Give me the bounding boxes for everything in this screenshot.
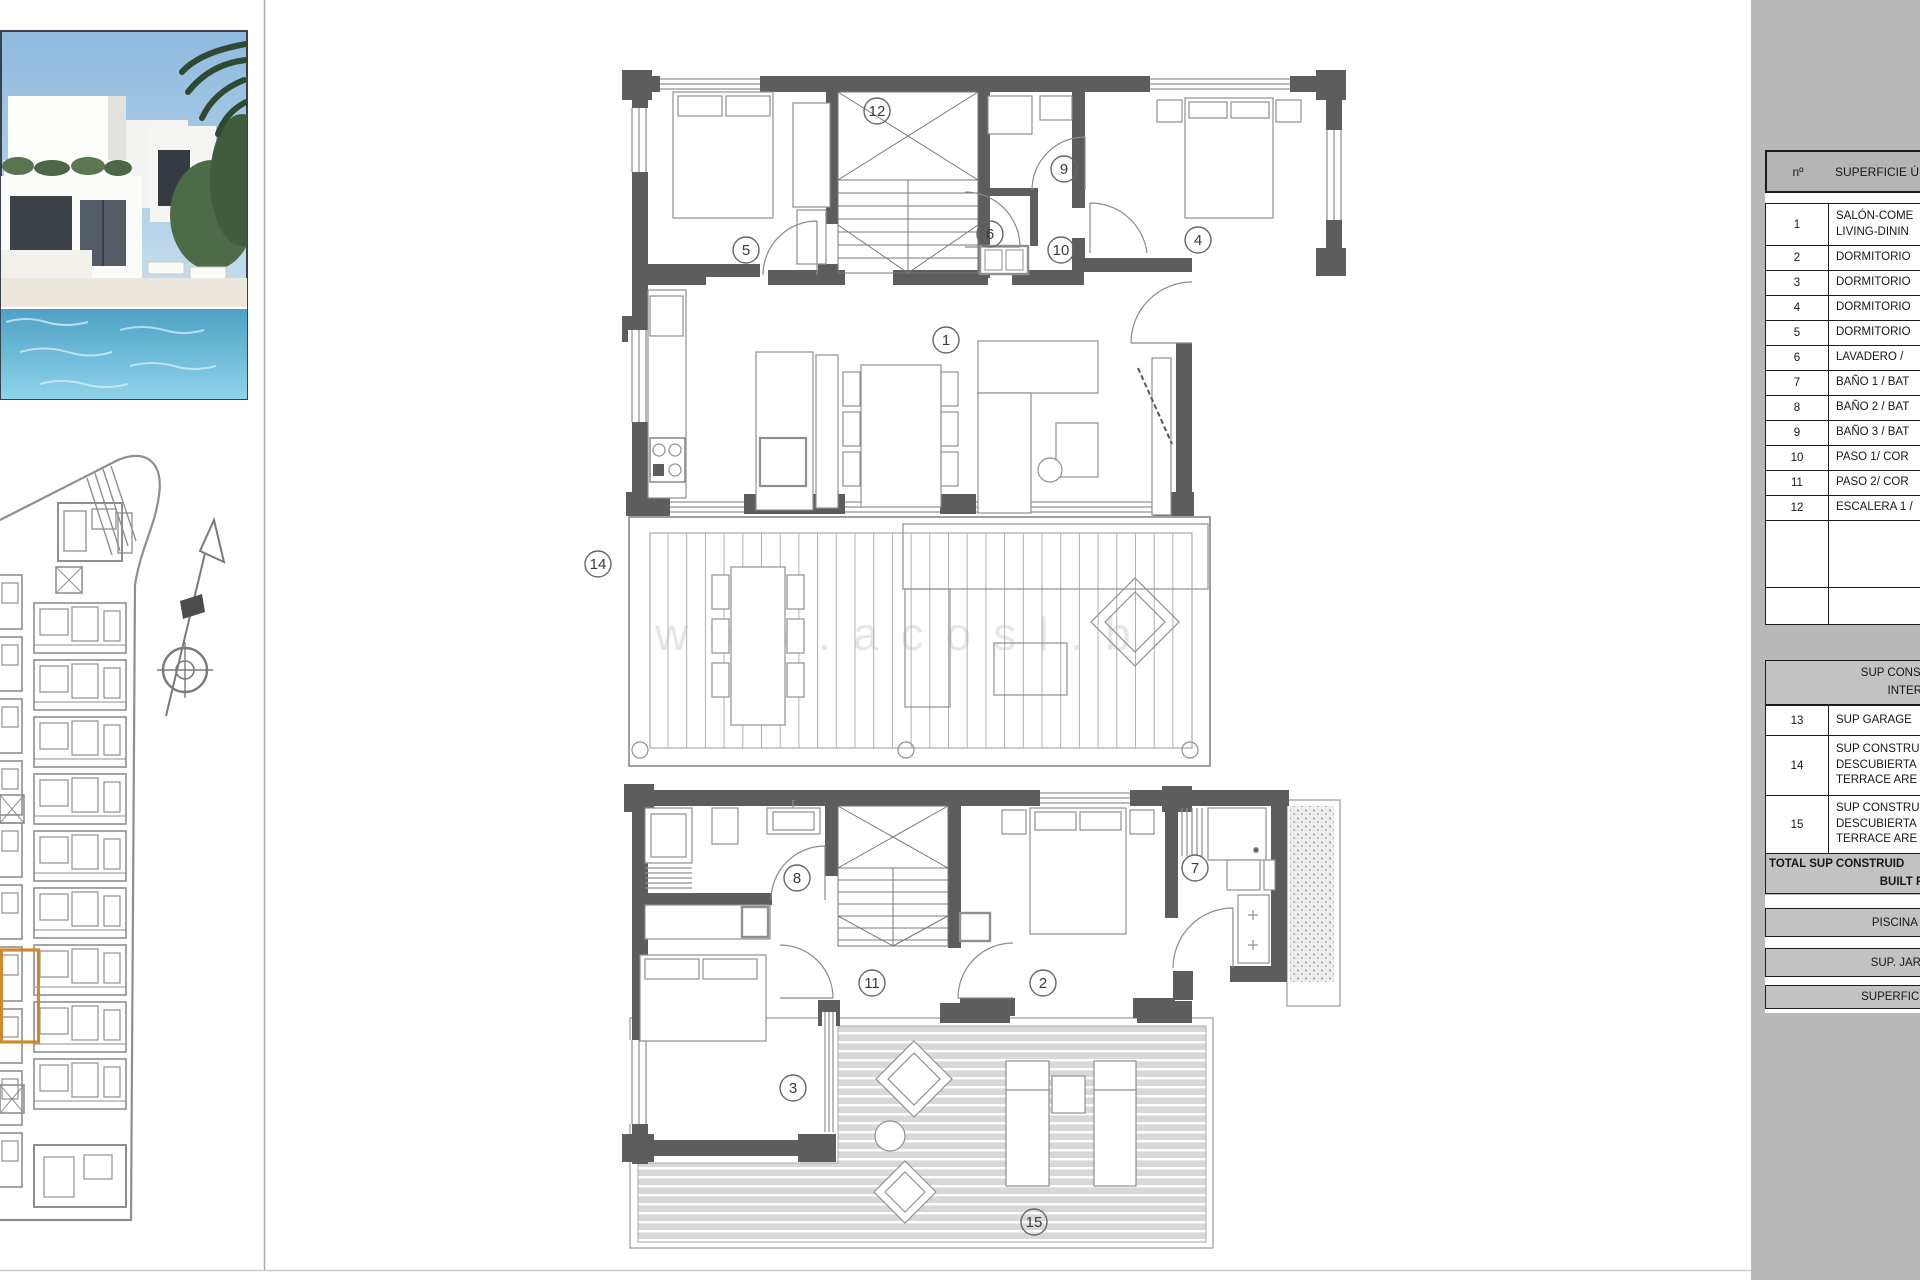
plot-highlight [2,950,39,1042]
table-row: 5DORMITORIO [1766,321,1920,346]
table-row: 8BAÑO 2 / BAT [1766,396,1920,421]
room-number-label: 14 [585,551,611,577]
table-row: 12ESCALERA 1 / [1766,496,1920,521]
total-line-2: BUILT PRIVA [1766,874,1920,891]
empty-row [1766,588,1920,624]
row-number: 9 [1766,421,1829,445]
row-label: DORMITORIO [1829,246,1920,270]
svg-text:3: 3 [789,1080,797,1097]
row-label: LAVADERO / [1829,346,1920,370]
svg-text:8: 8 [793,870,801,887]
header-gap [1765,193,1920,203]
svg-text:4: 4 [1194,232,1202,249]
table-header: nº SUPERFICIE Ú [1765,150,1920,193]
row-label: SALÓN-COMELIVING-DININ [1829,204,1920,245]
table-row: 15SUP CONSTRUDESCUBIERTATERRACE ARE [1766,796,1920,853]
svg-text:11: 11 [864,975,880,992]
table-row: 11PASO 2/ COR [1766,471,1920,496]
row-label: ESCALERA 1 / [1829,496,1920,520]
upper-floor-plan [622,70,1346,516]
row-label: DORMITORIO [1829,271,1920,295]
row-number: 13 [1766,706,1829,735]
section-header-band: SUP CONSTRUIDA IINTERIOR [1765,660,1920,705]
row-label: DORMITORIO [1829,321,1920,345]
total-band: TOTAL SUP CONSTRUID BUILT PRIVA [1765,853,1920,894]
table-row: 4DORMITORIO [1766,296,1920,321]
row-label: SUP CONSTRUDESCUBIERTATERRACE ARE [1829,736,1920,795]
table-row: 10PASO 1/ COR [1766,446,1920,471]
plan-sheet-page: { "panel": { "table": { "header": { "num… [0,0,1920,1280]
areas-table-rows: 1SALÓN-COMELIVING-DININ2DORMITORIO3DORMI… [1765,203,1920,625]
row-label: BAÑO 2 / BAT [1829,396,1920,420]
total-line-1: TOTAL SUP CONSTRUID [1766,856,1920,873]
svg-text:9: 9 [1060,161,1068,178]
row-label: PASO 2/ COR [1829,471,1920,495]
site-plan [0,456,160,1220]
empty-row [1766,521,1920,588]
row-number: 4 [1766,296,1829,320]
areas-panel: nº SUPERFICIE Ú 1SALÓN-COMELIVING-DININ2… [1751,0,1920,1280]
table-row: 7BAÑO 1 / BAT [1766,371,1920,396]
garden-band: SUP. JARDÍN / G [1765,948,1920,977]
table-row: 14SUP CONSTRUDESCUBIERTATERRACE ARE [1766,736,1920,796]
table-row: 9BAÑO 3 / BAT [1766,421,1920,446]
north-compass-icon [157,520,224,716]
table-row: 13SUP GARAGE [1766,706,1920,736]
svg-text:6: 6 [986,226,994,243]
sheet-canvas: www.acosl.b [0,0,1920,1280]
row-label: DORMITORIO [1829,296,1920,320]
villa-photo [0,31,274,400]
row-number: 6 [1766,346,1829,370]
row-label: BAÑO 3 / BAT [1829,421,1920,445]
svg-text:14: 14 [590,556,607,573]
row-label: BAÑO 1 / BAT [1829,371,1920,395]
row-number: 7 [1766,371,1829,395]
row-number: 11 [1766,471,1829,495]
svg-text:5: 5 [742,242,750,259]
svg-text:7: 7 [1191,860,1199,877]
row-number: 2 [1766,246,1829,270]
svg-text:12: 12 [869,103,886,120]
row-number: 8 [1766,396,1829,420]
row-label: PASO 1/ COR [1829,446,1920,470]
svg-text:15: 15 [1026,1214,1043,1231]
gravel-strip [1290,806,1334,982]
summary-bands: PISCINA / SWIM SUP. JARDÍN / G SUPERFICE… [1765,895,1920,1013]
svg-text:2: 2 [1039,975,1047,992]
table-row: 1SALÓN-COMELIVING-DININ [1766,204,1920,246]
svg-text:1: 1 [942,332,950,349]
row-label: SUP CONSTRUDESCUBIERTATERRACE ARE [1829,796,1920,853]
row-number: 3 [1766,271,1829,295]
areas-table-rows-2: 13SUP GARAGE14SUP CONSTRUDESCUBIERTATERR… [1765,705,1920,854]
row-number: 15 [1766,796,1829,853]
row-number: 14 [1766,736,1829,795]
row-number: 5 [1766,321,1829,345]
table-row: 3DORMITORIO [1766,271,1920,296]
row-number: 1 [1766,204,1829,245]
table-row: 2DORMITORIO [1766,246,1920,271]
row-number: 10 [1766,446,1829,470]
svg-text:10: 10 [1053,242,1070,259]
table-row: 6LAVADERO / [1766,346,1920,371]
table-header-label: SUPERFICIE Ú [1829,165,1919,179]
table-header-num: nº [1767,165,1829,179]
row-label: SUP GARAGE [1829,706,1920,735]
pool-band: PISCINA / SWIM [1765,908,1920,937]
row-number: 12 [1766,496,1829,520]
parcel-band: SUPERFICE PARCE [1765,985,1920,1009]
lower-floor-plan [622,784,1340,1248]
